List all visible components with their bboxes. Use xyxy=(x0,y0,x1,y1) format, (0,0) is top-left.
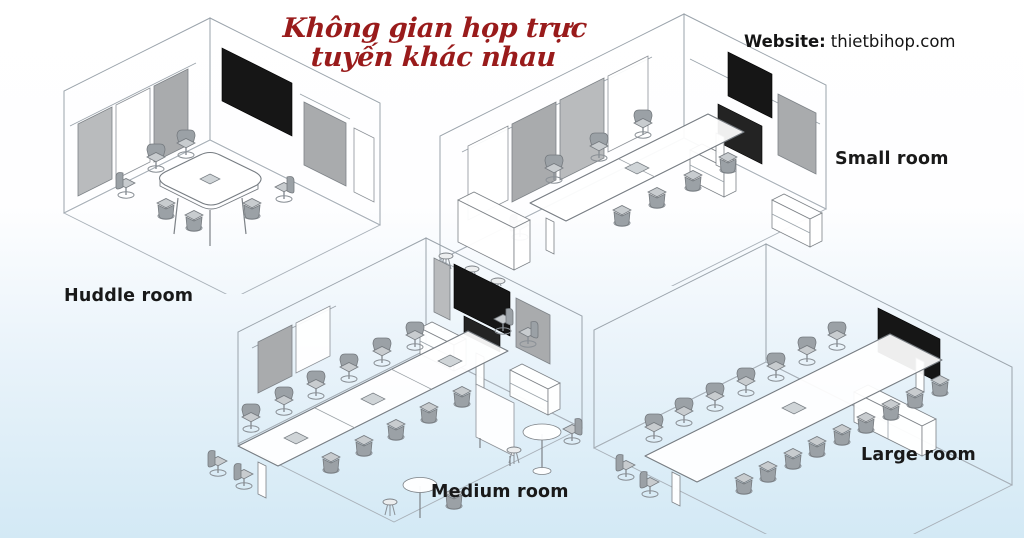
office-chair xyxy=(157,199,175,220)
office-chair xyxy=(784,449,802,470)
website-url: thietbihop.com xyxy=(831,32,956,51)
office-chair xyxy=(737,368,755,396)
website-line: Website:thietbihop.com xyxy=(744,32,955,51)
office-chair xyxy=(719,153,737,174)
office-chair xyxy=(613,206,631,227)
office-chair xyxy=(645,414,663,442)
office-chair xyxy=(116,173,135,199)
round-high-table xyxy=(523,424,561,475)
office-chair xyxy=(307,371,325,399)
office-chair xyxy=(275,387,293,415)
office-chair xyxy=(243,199,261,220)
office-chair xyxy=(931,376,949,397)
whiteboard-panel xyxy=(560,78,604,180)
office-chair xyxy=(684,171,702,192)
office-chair xyxy=(340,354,358,382)
office-chair xyxy=(798,337,816,365)
office-chair xyxy=(373,338,391,366)
whiteboard-panel xyxy=(258,325,292,393)
flipchart-panel xyxy=(778,94,816,174)
office-chair xyxy=(147,144,165,172)
stool xyxy=(507,447,521,464)
website-label: Website: xyxy=(744,32,826,51)
office-chair xyxy=(882,400,900,421)
office-chair xyxy=(234,464,253,490)
office-chair xyxy=(706,383,724,411)
table-leg xyxy=(672,472,680,506)
stool xyxy=(383,499,397,516)
office-chair xyxy=(808,437,826,458)
large-room-label: Large room xyxy=(861,445,976,465)
whiteboard-panel xyxy=(354,128,374,202)
whiteboard-panel xyxy=(78,107,112,196)
whiteboard-panel xyxy=(512,102,556,202)
whiteboard-panel xyxy=(608,56,648,152)
office-chair xyxy=(355,436,373,457)
office-chair xyxy=(453,387,471,408)
office-chair xyxy=(177,130,195,158)
flipchart-panel xyxy=(304,102,346,186)
office-chair xyxy=(759,462,777,483)
office-chair xyxy=(242,404,260,432)
title-line-2: tuyến khác nhau xyxy=(270,43,596,72)
office-chair xyxy=(735,474,753,495)
table-leg xyxy=(258,462,266,498)
small-room-label: Small room xyxy=(835,149,949,169)
medium-room-label: Medium room xyxy=(431,482,569,502)
office-chair xyxy=(563,419,582,445)
office-chair xyxy=(906,388,924,409)
office-chair xyxy=(420,403,438,424)
office-chair xyxy=(208,451,227,477)
office-chair xyxy=(767,353,785,381)
medium-room-illustration xyxy=(158,224,590,524)
page-title: Không gian họp trực tuyến khác nhau xyxy=(270,14,597,72)
whiteboard-panel xyxy=(116,88,150,179)
mobile-partition xyxy=(476,384,514,466)
infographic-canvas: Không gian họp trực tuyến khác nhau Webs… xyxy=(0,0,1024,538)
title-line-1: Không gian họp trực xyxy=(272,14,598,43)
office-chair xyxy=(675,398,693,426)
office-chair xyxy=(387,420,405,441)
whiteboard-panel xyxy=(434,258,450,320)
wall-cabinet xyxy=(510,364,560,415)
office-chair xyxy=(828,322,846,350)
office-chair xyxy=(648,188,666,209)
huddle-room-label: Huddle room xyxy=(64,286,193,306)
office-chair xyxy=(833,425,851,446)
office-chair xyxy=(857,413,875,434)
large-room-illustration xyxy=(586,234,1018,534)
whiteboard-panel xyxy=(296,306,330,373)
tv-screen xyxy=(728,52,772,118)
office-chair xyxy=(275,177,294,203)
office-chair xyxy=(322,453,340,474)
